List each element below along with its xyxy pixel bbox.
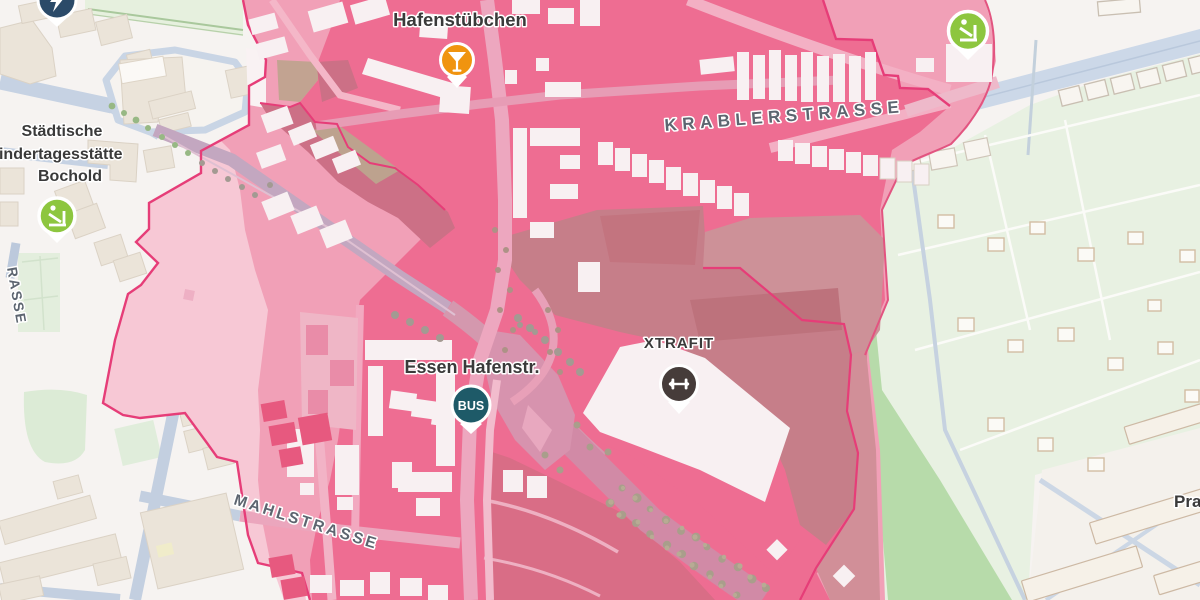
svg-text:Bochold: Bochold [38, 168, 102, 185]
svg-text:BUS: BUS [458, 399, 484, 413]
svg-text:Kindertagesstätte: Kindertagesstätte [0, 146, 123, 163]
svg-text:XTRAFIT: XTRAFIT [644, 335, 714, 352]
svg-text:Städtische: Städtische [22, 123, 103, 140]
svg-text:Pra: Pra [1174, 492, 1200, 511]
svg-text:Essen Hafenstr.: Essen Hafenstr. [404, 357, 539, 377]
svg-text:Hafenstübchen: Hafenstübchen [393, 9, 527, 30]
